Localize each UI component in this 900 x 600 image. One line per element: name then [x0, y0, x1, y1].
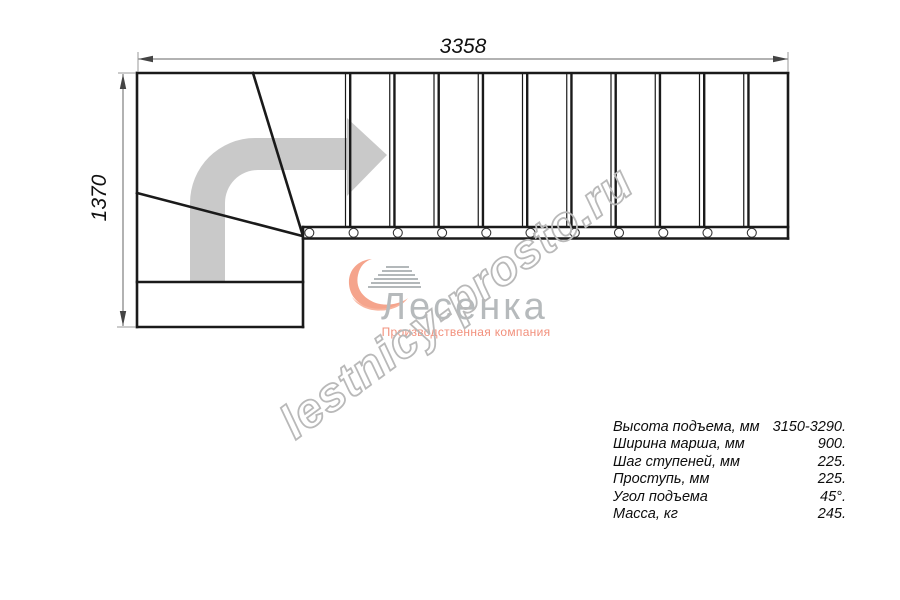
spec-value: 45°.	[820, 489, 846, 506]
spec-row: Высота подъема, мм 3150-3290.	[613, 419, 846, 436]
spec-row: Угол подъема 45°.	[613, 489, 846, 506]
logo-brand-text: Лесенка	[381, 286, 551, 329]
dim-height-value: 1370	[88, 174, 111, 221]
logo-tagline: Производственная компания	[381, 325, 551, 339]
dim-arrow-top	[120, 74, 126, 89]
logo-step-lines	[368, 267, 421, 287]
spec-value: 225.	[818, 454, 846, 471]
dimension-width: 3358	[138, 35, 788, 72]
spec-label: Угол подъема	[613, 489, 708, 506]
spec-label: Ширина марша, мм	[613, 436, 745, 453]
tread-lines	[346, 73, 749, 227]
spec-label: Шаг ступеней, мм	[613, 454, 740, 471]
direction-arrow	[190, 118, 387, 282]
spec-label: Масса, кг	[613, 506, 678, 523]
spec-row: Ширина марша, мм 900.	[613, 436, 846, 453]
dim-width-value: 3358	[440, 35, 487, 58]
dim-arrow-left	[138, 56, 153, 62]
baluster-circles	[305, 228, 757, 237]
spec-label: Проступь, мм	[613, 471, 709, 488]
spec-value: 245.	[818, 506, 846, 523]
spec-value: 3150-3290.	[773, 419, 846, 436]
dim-arrow-right	[773, 56, 788, 62]
dimension-height: 1370	[88, 73, 136, 327]
dim-arrow-bottom	[120, 311, 126, 326]
spec-row: Проступь, мм 225.	[613, 471, 846, 488]
spec-value: 900.	[818, 436, 846, 453]
specs-table: Высота подъема, мм 3150-3290. Ширина мар…	[613, 419, 846, 523]
stair-drawing-page: 3358 1370 Лесенка Производств	[0, 0, 900, 600]
spec-row: Масса, кг 245.	[613, 506, 846, 523]
spec-label: Высота подъема, мм	[613, 419, 760, 436]
spec-row: Шаг ступеней, мм 225.	[613, 454, 846, 471]
spec-value: 225.	[818, 471, 846, 488]
